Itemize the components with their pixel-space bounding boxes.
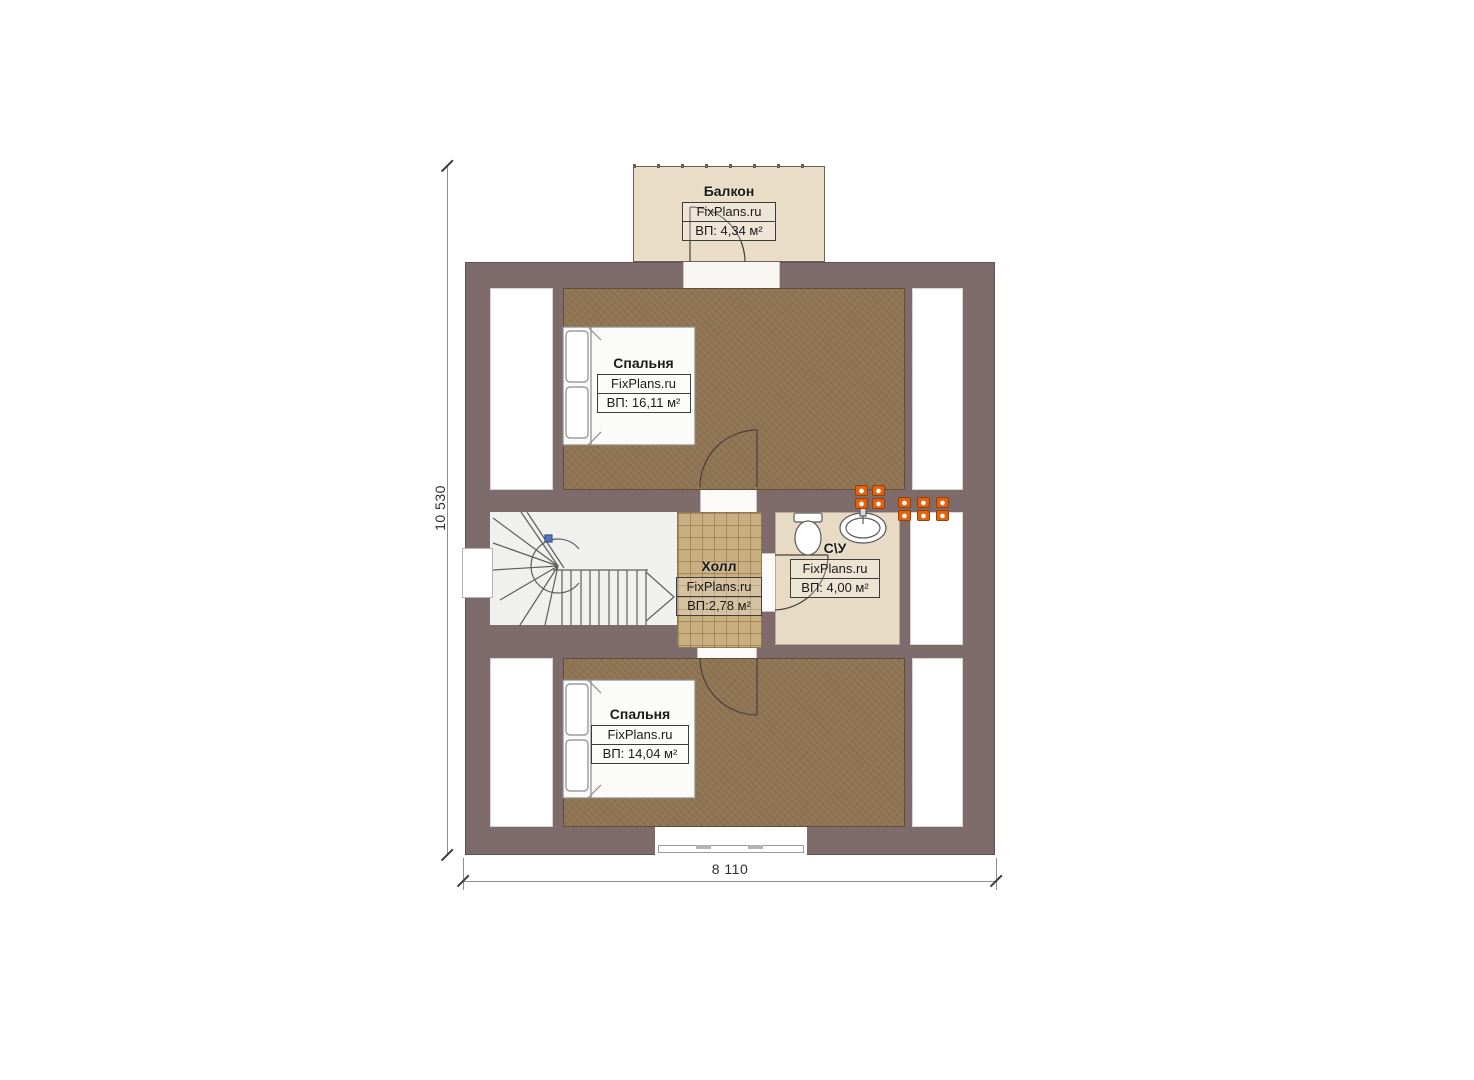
bedroom-top-info-box: FixPlans.ru ВП: 16,11 м² xyxy=(597,374,691,413)
height-dimension-label: 10 530 xyxy=(432,478,448,538)
watermark-text: FixPlans.ru xyxy=(791,560,879,578)
attic-void-top-right xyxy=(912,288,963,490)
balcony-info-box: FixPlans.ru ВП: 4,34 м² xyxy=(682,202,776,241)
socket-icon xyxy=(872,485,885,509)
stair-window-opening xyxy=(462,548,493,598)
socket-icon xyxy=(936,497,949,521)
balcony-area: ВП: 4,34 м² xyxy=(683,221,775,240)
bedroom-bottom-info-box: FixPlans.ru ВП: 14,04 м² xyxy=(591,725,689,764)
bathroom-label: С\У FixPlans.ru ВП: 4,00 м² xyxy=(790,540,880,598)
socket-icon xyxy=(898,497,911,521)
bottom-window-sill xyxy=(658,845,804,853)
horizontal-dimension-extension-right xyxy=(996,858,997,890)
hall-label: Холл FixPlans.ru ВП:2,78 м² xyxy=(676,558,762,616)
socket-icon xyxy=(917,497,930,521)
hall-name: Холл xyxy=(701,558,736,574)
attic-void-bottom-right xyxy=(912,658,963,827)
floor-plan-canvas: 10 530 8 110 xyxy=(0,0,1474,1080)
balcony-railing xyxy=(633,164,825,168)
bedroom-top-area: ВП: 16,11 м² xyxy=(598,393,690,412)
attic-void-bottom-left xyxy=(490,658,553,827)
horizontal-dimension-line xyxy=(463,881,997,882)
watermark-text: FixPlans.ru xyxy=(598,375,690,393)
balcony-door-opening xyxy=(683,262,780,288)
bathroom-area: ВП: 4,00 м² xyxy=(791,578,879,597)
bathroom-door-opening xyxy=(762,553,775,612)
bedroom-top-name: Спальня xyxy=(613,355,673,371)
bathroom-name: С\У xyxy=(824,540,847,556)
bathroom-info-box: FixPlans.ru ВП: 4,00 м² xyxy=(790,559,880,598)
balcony-name: Балкон xyxy=(704,183,755,199)
bottom-window-mullion-right xyxy=(748,845,763,849)
bottom-window-mullion-left xyxy=(696,845,711,849)
attic-void-top-left xyxy=(490,288,553,490)
watermark-text: FixPlans.ru xyxy=(677,578,761,596)
watermark-text: FixPlans.ru xyxy=(683,203,775,221)
width-dimension-label: 8 110 xyxy=(700,861,760,877)
horizontal-dimension-extension-left xyxy=(463,858,464,890)
socket-icon xyxy=(855,485,868,509)
hall-info-box: FixPlans.ru ВП:2,78 м² xyxy=(676,577,762,616)
watermark-text: FixPlans.ru xyxy=(592,726,688,744)
bedroom-bottom-door-opening xyxy=(697,648,757,658)
attic-void-mid-right xyxy=(910,512,963,645)
bedroom-bottom-name: Спальня xyxy=(610,706,670,722)
staircase-area xyxy=(490,512,677,625)
hall-area: ВП:2,78 м² xyxy=(677,596,761,615)
bedroom-top-label: Спальня FixPlans.ru ВП: 16,11 м² xyxy=(597,355,690,413)
bedroom-bottom-area: ВП: 14,04 м² xyxy=(592,744,688,763)
bedroom-bottom-label: Спальня FixPlans.ru ВП: 14,04 м² xyxy=(592,706,688,764)
bedroom-top-door-opening xyxy=(700,490,757,512)
balcony-label: Балкон FixPlans.ru ВП: 4,34 м² xyxy=(683,183,775,241)
